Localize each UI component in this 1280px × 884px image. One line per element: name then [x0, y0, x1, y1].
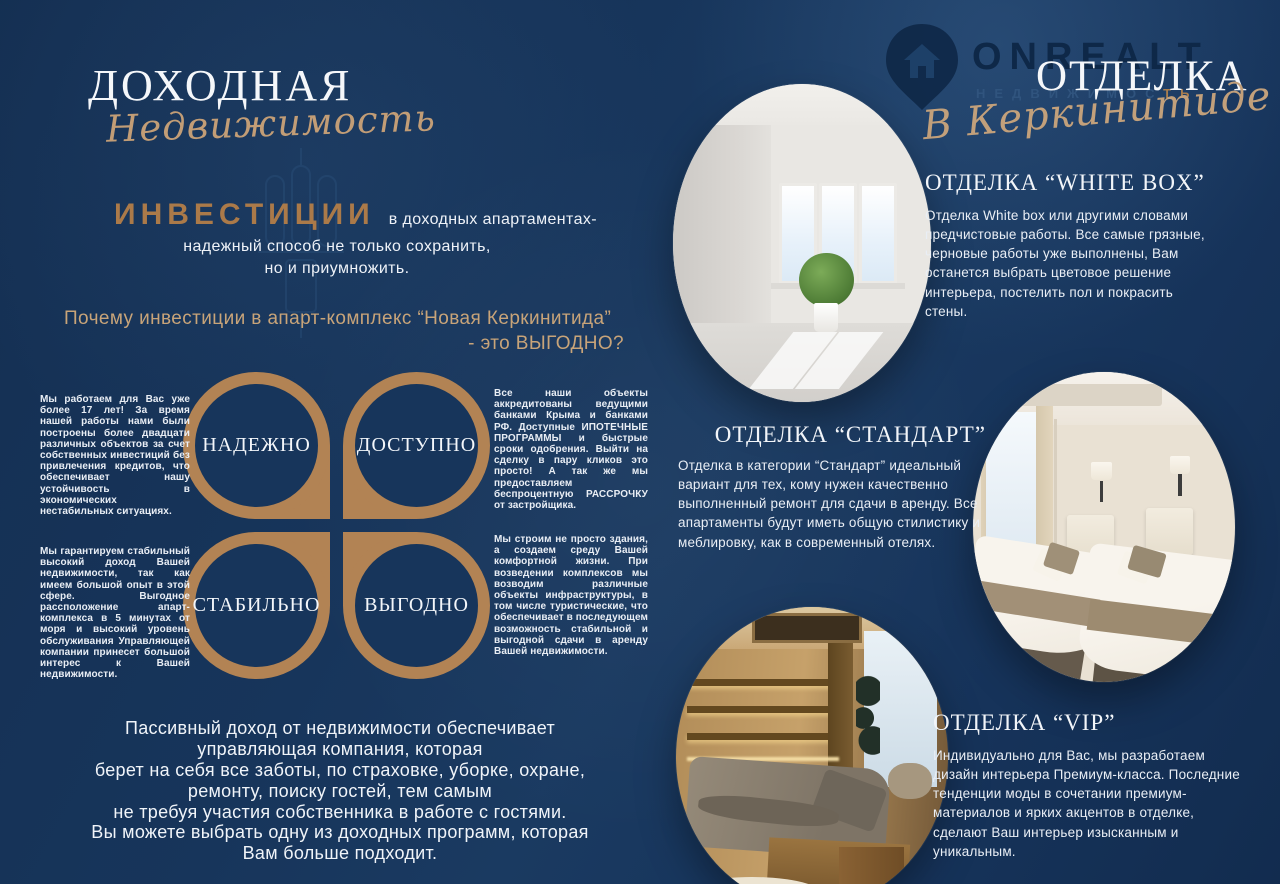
benefit-label: НАДЕЖНО: [202, 434, 311, 457]
benefit-accessible: ДОСТУПНО: [343, 372, 490, 519]
benefit-ring: ДОСТУПНО: [343, 372, 490, 519]
why-heading: Почему инвестиции в апарт-комплекс “Нова…: [64, 306, 624, 356]
photo-vip: [676, 607, 948, 884]
photo-detail: [839, 847, 904, 884]
photo-detail: [859, 183, 897, 284]
benefit-ring: ВЫГОДНО: [343, 532, 490, 679]
invest-subline-1: надежный способ не только сохранить,: [122, 236, 552, 258]
photo-standard: [973, 372, 1235, 682]
benefit-stable: СТАБИЛЬНО: [183, 532, 330, 679]
photo-detail: [814, 303, 839, 332]
section-heading-white-box: ОТДЕЛКА “WHITE BOX”: [925, 170, 1205, 196]
photo-detail: [1020, 384, 1161, 406]
brochure-page: ДОХОДНАЯ Недвижимость ИНВЕСТИЦИИ в доход…: [0, 0, 1280, 884]
photo-detail: [673, 84, 931, 125]
invest-headline: ИНВЕСТИЦИИ в доходных апартаментах-: [114, 198, 597, 232]
footer-line: Вы можете выбрать одну из доходных прогр…: [40, 822, 640, 843]
text-block-accessible: Все наши объекты аккредитованы ведущими …: [494, 388, 648, 511]
text-block-profitable: Мы строим не просто здания, а создаем ср…: [494, 534, 648, 657]
benefit-label: СТАБИЛЬНО: [193, 594, 321, 617]
section-body-vip: Индивидуально для Вас, мы разработаем ди…: [933, 746, 1241, 861]
photo-detail: [687, 733, 845, 740]
benefit-reliable: НАДЕЖНО: [183, 372, 330, 519]
photo-detail: [752, 613, 861, 643]
photo-detail: [888, 763, 932, 799]
footer-line: управляющая компания, которая: [40, 739, 640, 760]
benefit-label: ВЫГОДНО: [364, 594, 469, 617]
photo-detail: [1178, 474, 1181, 496]
section-body-white-box: Отделка White box или другими словами пр…: [925, 206, 1217, 321]
footer-line: ремонту, поиску гостей, тем самым: [40, 781, 640, 802]
text-block-stable: Мы гарантируем стабильный высокий доход …: [40, 546, 190, 680]
benefit-ring: НАДЕЖНО: [183, 372, 330, 519]
photo-detail: [1170, 456, 1191, 475]
footer-line: Вам больше подходит.: [40, 843, 640, 864]
invest-subline-2: но и приумножить.: [122, 258, 552, 280]
footer-line: не требуя участия собственника в работе …: [40, 802, 640, 823]
benefit-label: ДОСТУПНО: [357, 434, 476, 457]
footer-line: Пассивный доход от недвижимости обеспечи…: [40, 718, 640, 739]
invest-tail: в доходных апартаментах-: [389, 211, 597, 229]
benefits-clover: НАДЕЖНО ДОСТУПНО СТАБИЛЬНО ВЫГОДНО: [183, 372, 490, 679]
photo-detail: [856, 673, 880, 763]
text-block-reliable: Мы работаем для Вас уже более 17 лет! За…: [40, 394, 190, 517]
section-heading-vip: ОТДЕЛКА “VIP”: [933, 710, 1115, 736]
photo-detail: [1091, 462, 1112, 481]
why-line-1: Почему инвестиции в апарт-комплекс “Нова…: [64, 306, 624, 331]
benefit-profitable: ВЫГОДНО: [343, 532, 490, 679]
photo-detail: [687, 679, 845, 686]
photo-white-box: [673, 84, 931, 402]
section-body-standard: Отделка в категории “Стандарт” идеальный…: [678, 456, 988, 552]
photo-detail: [687, 706, 845, 713]
photo-detail: [1146, 508, 1193, 555]
benefit-ring: СТАБИЛЬНО: [183, 532, 330, 679]
why-line-2: - это ВЫГОДНО?: [64, 331, 624, 356]
photo-detail: [799, 253, 853, 307]
footer-paragraph: Пассивный доход от недвижимости обеспечи…: [40, 718, 640, 864]
footer-line: берет на себя все заботы, по страховке, …: [40, 760, 640, 781]
section-heading-standard: ОТДЕЛКА “СТАНДАРТ”: [678, 422, 986, 448]
invest-word: ИНВЕСТИЦИИ: [114, 198, 375, 232]
photo-detail: [1100, 481, 1103, 503]
